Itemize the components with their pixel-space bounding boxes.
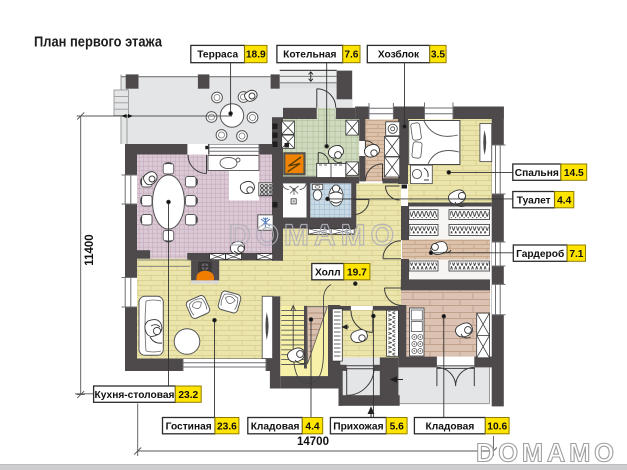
svg-text:Терраса: Терраса	[197, 50, 238, 61]
svg-text:3.5: 3.5	[431, 50, 445, 61]
svg-text:DOMAMO: DOMAMO	[229, 219, 399, 252]
svg-text:Прихожая: Прихожая	[333, 421, 383, 432]
svg-text:Холл: Холл	[315, 267, 341, 278]
svg-text:14.5: 14.5	[564, 168, 584, 179]
svg-text:Хозблок: Хозблок	[378, 49, 420, 61]
svg-text:23.2: 23.2	[178, 390, 198, 401]
svg-text:План первого этажа: План первого этажа	[34, 35, 163, 51]
svg-text:7.6: 7.6	[344, 50, 358, 61]
svg-text:Кладовая: Кладовая	[426, 421, 475, 432]
svg-text:4.4: 4.4	[305, 421, 319, 432]
svg-text:Кухня-столовая: Кухня-столовая	[95, 390, 175, 401]
svg-text:Гостиная: Гостиная	[166, 421, 212, 432]
svg-text:DOMAMO: DOMAMO	[476, 440, 618, 468]
svg-text:18.9: 18.9	[246, 50, 266, 61]
svg-text:23.6: 23.6	[217, 421, 237, 432]
svg-text:Кладовая: Кладовая	[251, 421, 300, 432]
svg-text:11400: 11400	[84, 234, 96, 265]
svg-text:19.7: 19.7	[347, 267, 367, 278]
svg-text:Спальня: Спальня	[515, 168, 559, 179]
svg-text:Туалет: Туалет	[517, 195, 551, 206]
svg-text:4.4: 4.4	[557, 195, 571, 206]
svg-text:7.1: 7.1	[569, 249, 583, 260]
svg-text:5.6: 5.6	[390, 421, 404, 432]
svg-text:14700: 14700	[297, 436, 329, 448]
svg-text:10.6: 10.6	[487, 421, 507, 432]
svg-text:Котельная: Котельная	[283, 50, 336, 61]
svg-text:Гардероб: Гардероб	[516, 248, 564, 260]
